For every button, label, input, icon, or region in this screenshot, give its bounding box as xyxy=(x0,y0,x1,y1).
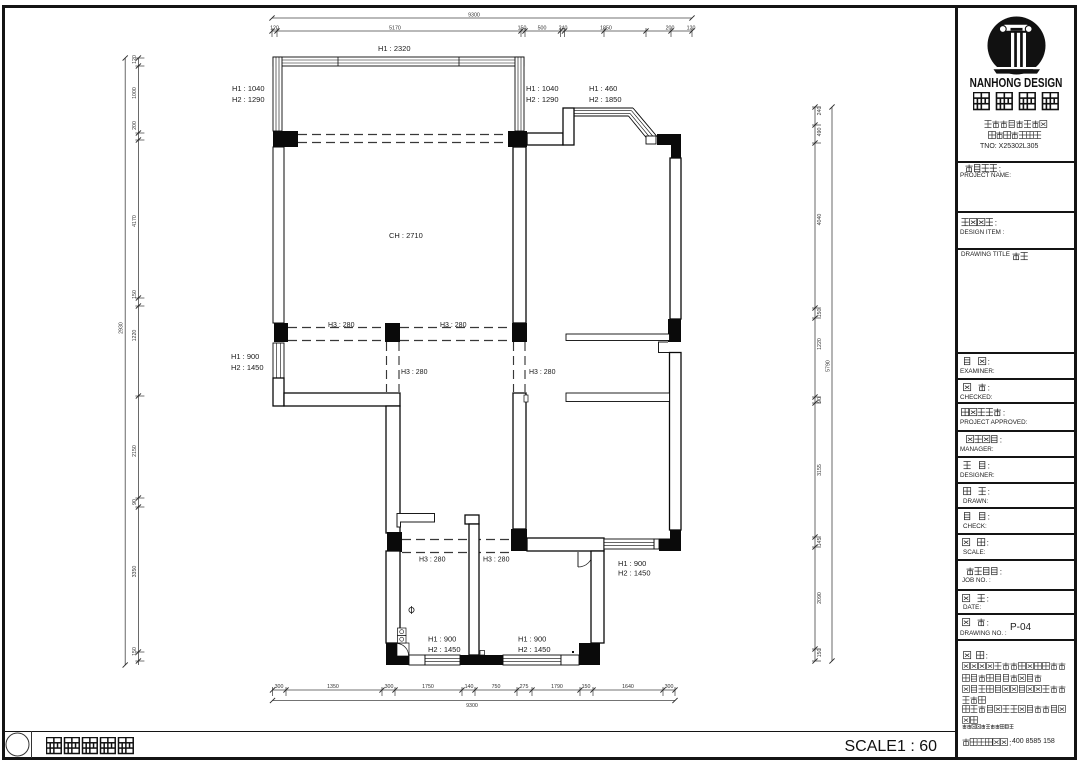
svg-text:150: 150 xyxy=(518,26,527,32)
svg-text:H3 : 280: H3 : 280 xyxy=(401,369,428,376)
svg-text:H3 : 280: H3 : 280 xyxy=(328,322,355,329)
svg-text:5170: 5170 xyxy=(389,26,401,32)
svg-text::: : xyxy=(987,594,989,603)
svg-text:H2 : 1850: H2 : 1850 xyxy=(589,95,622,104)
svg-text:H1 : 900: H1 : 900 xyxy=(428,635,456,644)
svg-text:140: 140 xyxy=(465,684,474,690)
svg-text:1220: 1220 xyxy=(817,338,823,350)
svg-text:H2 : 1450: H2 : 1450 xyxy=(518,645,551,654)
svg-text:200: 200 xyxy=(132,121,138,130)
svg-text:5790: 5790 xyxy=(826,360,832,372)
svg-text:120: 120 xyxy=(687,26,696,32)
svg-text:H1 : 1040: H1 : 1040 xyxy=(232,84,265,93)
svg-text:150: 150 xyxy=(817,649,823,658)
svg-text:H1 : 2320: H1 : 2320 xyxy=(378,44,411,53)
svg-text:150: 150 xyxy=(817,309,823,318)
svg-text:90: 90 xyxy=(132,499,138,505)
svg-text:H1 : 460: H1 : 460 xyxy=(589,84,617,93)
svg-text:H1 : 900: H1 : 900 xyxy=(618,559,646,568)
svg-text:750: 750 xyxy=(492,684,501,690)
svg-text:490: 490 xyxy=(817,128,823,137)
svg-text:3155: 3155 xyxy=(817,464,823,476)
svg-text:H2 : 1450: H2 : 1450 xyxy=(231,363,264,372)
svg-text::: : xyxy=(1003,408,1005,417)
svg-text:2150: 2150 xyxy=(132,445,138,457)
svg-text::: : xyxy=(986,651,988,660)
svg-text:300: 300 xyxy=(385,684,394,690)
svg-text:4040: 4040 xyxy=(817,214,823,226)
svg-text::: : xyxy=(988,358,990,367)
svg-text:300: 300 xyxy=(275,684,284,690)
svg-text:2090: 2090 xyxy=(817,592,823,604)
svg-text::: : xyxy=(988,513,990,522)
svg-text:1850: 1850 xyxy=(600,26,612,32)
svg-text::: : xyxy=(987,539,989,548)
svg-text::: : xyxy=(995,219,997,228)
svg-text::: : xyxy=(1000,435,1002,444)
svg-text:H2 : 1450: H2 : 1450 xyxy=(428,645,461,654)
svg-text:3350: 3350 xyxy=(132,566,138,578)
svg-text::: : xyxy=(988,461,990,470)
svg-text::: : xyxy=(988,384,990,393)
svg-text:H1 : 900: H1 : 900 xyxy=(231,352,259,361)
svg-text:H3 : 280: H3 : 280 xyxy=(419,557,446,564)
svg-text:9300: 9300 xyxy=(466,703,478,709)
svg-text:240: 240 xyxy=(817,107,823,116)
svg-text:2930: 2930 xyxy=(119,322,125,334)
svg-text:150: 150 xyxy=(132,290,138,299)
svg-text:120: 120 xyxy=(270,26,279,32)
svg-text:H2 : 1450: H2 : 1450 xyxy=(618,569,651,578)
svg-text:1350: 1350 xyxy=(327,684,339,690)
svg-text:500: 500 xyxy=(538,26,547,32)
svg-text::: : xyxy=(1009,738,1011,747)
svg-text::: : xyxy=(988,487,990,496)
svg-text::: : xyxy=(1000,567,1002,576)
svg-text:150: 150 xyxy=(582,684,591,690)
svg-text:200: 200 xyxy=(666,26,675,32)
svg-text:90: 90 xyxy=(817,397,823,403)
svg-text:H1 : 900: H1 : 900 xyxy=(518,635,546,644)
svg-text:9300: 9300 xyxy=(468,13,480,19)
svg-text:1750: 1750 xyxy=(422,684,434,690)
svg-text:1220: 1220 xyxy=(132,330,138,342)
svg-text:1640: 1640 xyxy=(622,684,634,690)
svg-text:CH : 2710: CH : 2710 xyxy=(389,231,423,240)
svg-text:300: 300 xyxy=(665,684,674,690)
svg-text:4170: 4170 xyxy=(132,215,138,227)
svg-text:1000: 1000 xyxy=(132,87,138,99)
svg-text:240: 240 xyxy=(559,26,568,32)
svg-text::: : xyxy=(987,619,989,628)
svg-text:1790: 1790 xyxy=(551,684,563,690)
svg-text:145: 145 xyxy=(817,538,823,547)
svg-text:H3 : 280: H3 : 280 xyxy=(440,322,467,329)
svg-text:H2 : 1290: H2 : 1290 xyxy=(526,95,559,104)
svg-text:150: 150 xyxy=(132,647,138,656)
svg-text:275: 275 xyxy=(520,684,529,690)
svg-text:H1 : 1040: H1 : 1040 xyxy=(526,84,559,93)
svg-text:120: 120 xyxy=(132,55,138,64)
svg-text:H3 : 280: H3 : 280 xyxy=(529,369,556,376)
svg-text:H2 : 1290: H2 : 1290 xyxy=(232,95,265,104)
svg-text:H3 : 280: H3 : 280 xyxy=(483,557,510,564)
